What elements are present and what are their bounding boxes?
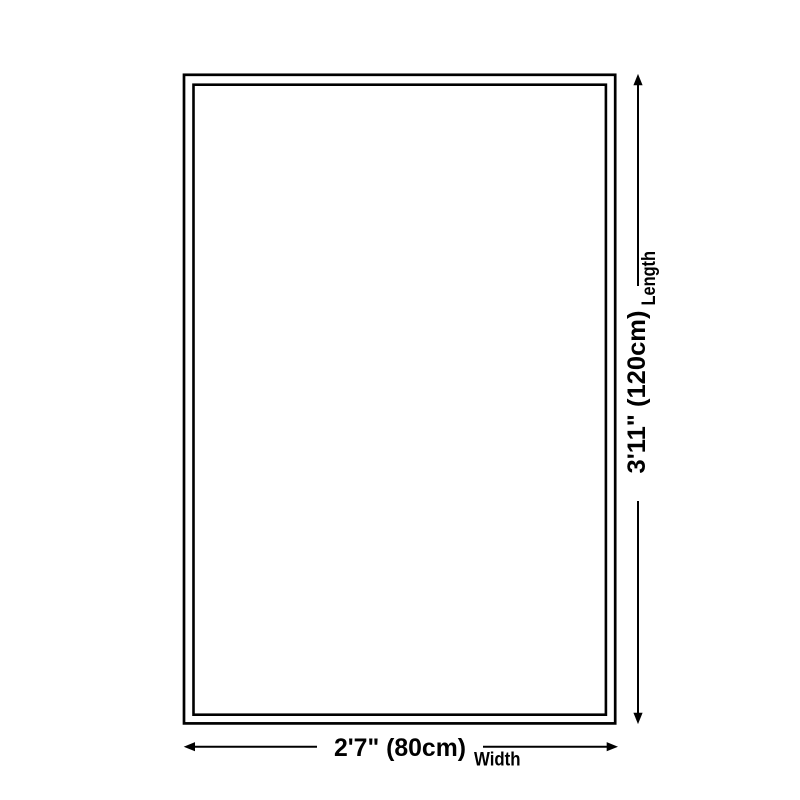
svg-text:Width: Width: [474, 750, 521, 771]
svg-text:2'7" (80cm): 2'7" (80cm): [334, 734, 466, 762]
svg-text:Length: Length: [639, 251, 660, 306]
svg-text:3'11" (120cm): 3'11" (120cm): [623, 311, 651, 474]
